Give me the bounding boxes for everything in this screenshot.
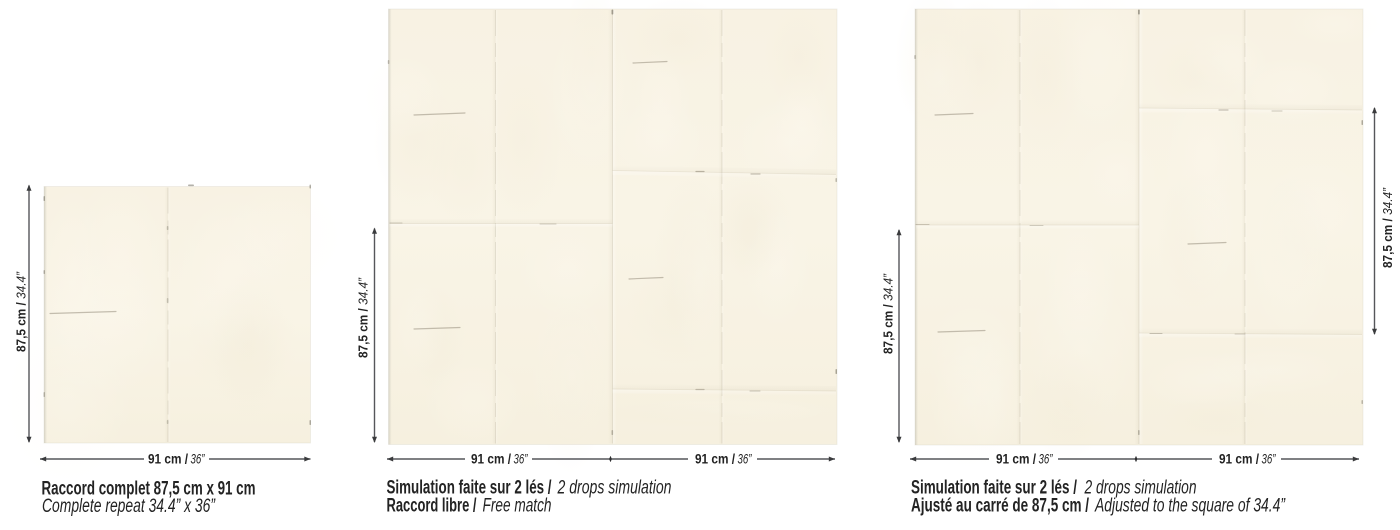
svg-text:Raccord libre /: Raccord libre / (387, 496, 477, 517)
svg-text:91 cm /: 91 cm / (471, 452, 511, 467)
svg-text:87,5 cm / 34.4”: 87,5 cm / 34.4” (14, 271, 29, 352)
svg-text:Ajusté au carré de 87,5 cm /: Ajusté au carré de 87,5 cm / (911, 496, 1090, 517)
svg-text:87,5 cm / 34.4”: 87,5 cm / 34.4” (881, 273, 896, 354)
svg-text:91 cm /: 91 cm / (1219, 452, 1259, 467)
svg-text:91 cm /: 91 cm / (996, 452, 1036, 467)
svg-text:87,5 cm / 34.4”: 87,5 cm / 34.4” (356, 277, 371, 358)
svg-text:36”: 36” (738, 452, 753, 467)
svg-text:Adjusted to the square of 34.4: Adjusted to the square of 34.4” (1094, 496, 1286, 517)
svg-text:2 drops simulation: 2 drops simulation (557, 478, 672, 499)
svg-text:87,5 cm / 34.4”: 87,5 cm / 34.4” (1380, 187, 1395, 268)
svg-text:36”: 36” (191, 452, 206, 467)
svg-text:36”: 36” (514, 452, 529, 467)
svg-text:91 cm /: 91 cm / (148, 452, 188, 467)
svg-text:91 cm /: 91 cm / (695, 452, 735, 467)
svg-text:36”: 36” (1262, 452, 1277, 467)
svg-text:Complete repeat 34.4” x 36”: Complete repeat 34.4” x 36” (42, 496, 216, 517)
svg-text:Free match: Free match (483, 496, 552, 517)
svg-text:36”: 36” (1039, 452, 1054, 467)
